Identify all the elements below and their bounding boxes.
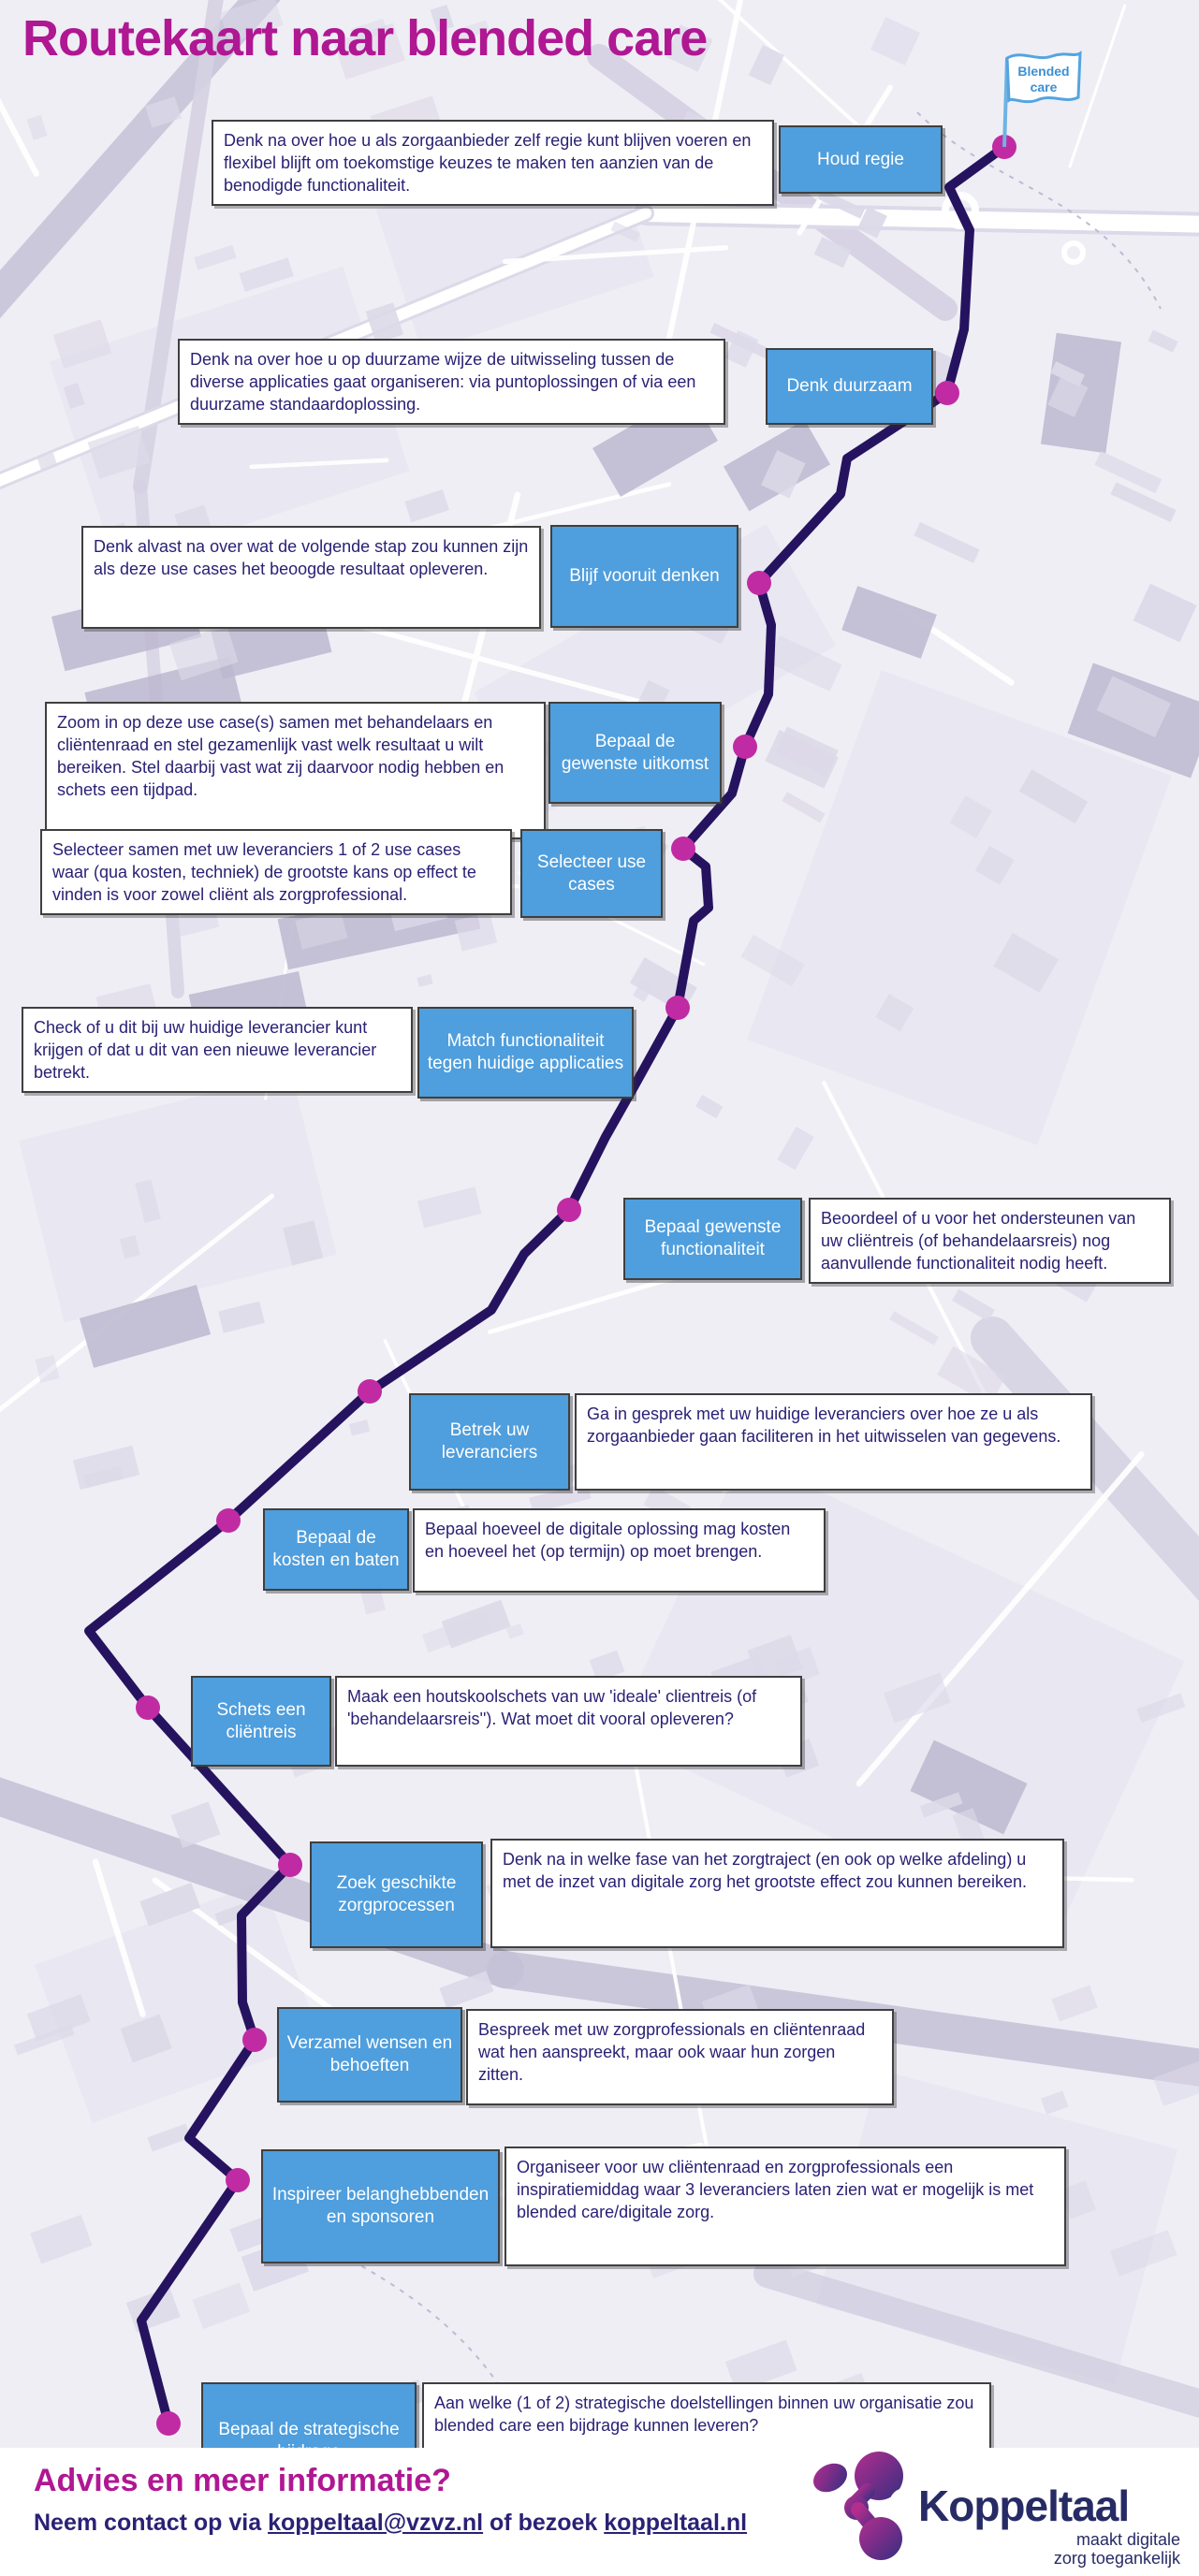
step-5-description: Selecteer samen met uw leveranciers 1 of… [40,829,512,915]
page-title: Routekaart naar blended care [22,9,707,67]
milestone-dot-2 [935,381,959,405]
milestone-dot-8 [358,1379,382,1404]
step-1-button[interactable]: Houd regie [779,125,943,194]
milestone-dot-10 [136,1696,160,1720]
milestone-dot-7 [557,1198,581,1222]
step-7-description: Beoordeel of u voor het ondersteunen van… [809,1198,1171,1284]
footer: Advies en meer informatie? Neem contact … [0,2448,1199,2576]
milestone-dot-3 [747,571,771,595]
footer-contact-line: Neem contact op via koppeltaal@vzvz.nl o… [34,2510,747,2537]
step-3-description: Denk alvast na over wat de volgende stap… [81,526,541,629]
contact-prefix: Neem contact op via [34,2510,268,2536]
step-5-button[interactable]: Selecteer use cases [520,829,663,918]
step-12-button[interactable]: Verzamel wensen en behoeften [277,2007,462,2103]
step-11-description: Denk na in welke fase van het zorgtrajec… [490,1839,1064,1948]
koppeltaal-logo: Koppeltaal maakt digitale zorg toegankel… [798,2448,1192,2576]
milestone-dot-9 [216,1508,241,1533]
contact-middle: of bezoek [483,2510,604,2536]
step-3-button[interactable]: Blijf vooruit denken [550,525,738,628]
website-link[interactable]: koppeltaal.nl [604,2510,747,2536]
step-1-description: Denk na over hoe u als zorgaanbieder zel… [212,120,774,206]
step-11-button[interactable]: Zoek geschikte zorgprocessen [310,1841,483,1948]
koppeltaal-logo-mark [809,2452,921,2560]
step-4-description: Zoom in op deze use case(s) samen met be… [45,702,546,839]
step-9-button[interactable]: Bepaal de kosten en baten [263,1508,409,1591]
milestone-dot-4 [733,735,757,759]
email-link[interactable]: koppeltaal@vzvz.nl [268,2510,483,2536]
flag-text-line2: care [1031,80,1058,95]
footer-heading: Advies en meer informatie? [34,2463,451,2499]
step-6-description: Check of u dit bij uw huidige leverancie… [22,1007,413,1093]
milestone-dot-6 [665,996,690,1020]
step-2-description: Denk na over hoe u op duurzame wijze de … [178,339,725,425]
step-8-button[interactable]: Betrek uw leveranciers [409,1393,570,1491]
step-10-button[interactable]: Schets een cliëntreis [191,1676,331,1767]
step-6-button[interactable]: Match functionaliteit tegen huidige appl… [417,1007,634,1099]
logo-tagline-line1: maakt digitale [1076,2530,1180,2549]
step-2-button[interactable]: Denk duurzaam [766,348,933,425]
step-10-description: Maak een houtskoolschets van uw 'ideale'… [335,1676,802,1767]
milestone-dot-13 [226,2168,250,2192]
step-8-description: Ga in gesprek met uw huidige leverancier… [575,1393,1092,1491]
step-9-description: Bepaal hoeveel de digitale oplossing mag… [413,1508,826,1593]
step-7-button[interactable]: Bepaal gewenste functionaliteit [623,1198,802,1280]
milestone-dot-5 [671,837,695,861]
milestone-dot-11 [278,1853,302,1877]
step-12-description: Bespreek met uw zorgprofessionals en cli… [466,2009,894,2105]
flag-text-line1: Blended [1017,64,1069,79]
milestone-dot-14 [156,2411,181,2436]
logo-tagline-line2: zorg toegankelijk [1054,2549,1181,2568]
routekaart-infographic: Blended care Routekaart naar blended car… [0,0,1199,2576]
logo-wordmark: Koppeltaal [918,2481,1129,2530]
step-13-description: Organiseer voor uw cliëntenraad en zorgp… [504,2147,1066,2266]
step-4-button[interactable]: Bepaal de gewenste uitkomst [548,702,722,804]
step-13-button[interactable]: Inspireer belanghebbenden en sponsoren [261,2149,500,2263]
milestone-dot-12 [242,2028,267,2052]
